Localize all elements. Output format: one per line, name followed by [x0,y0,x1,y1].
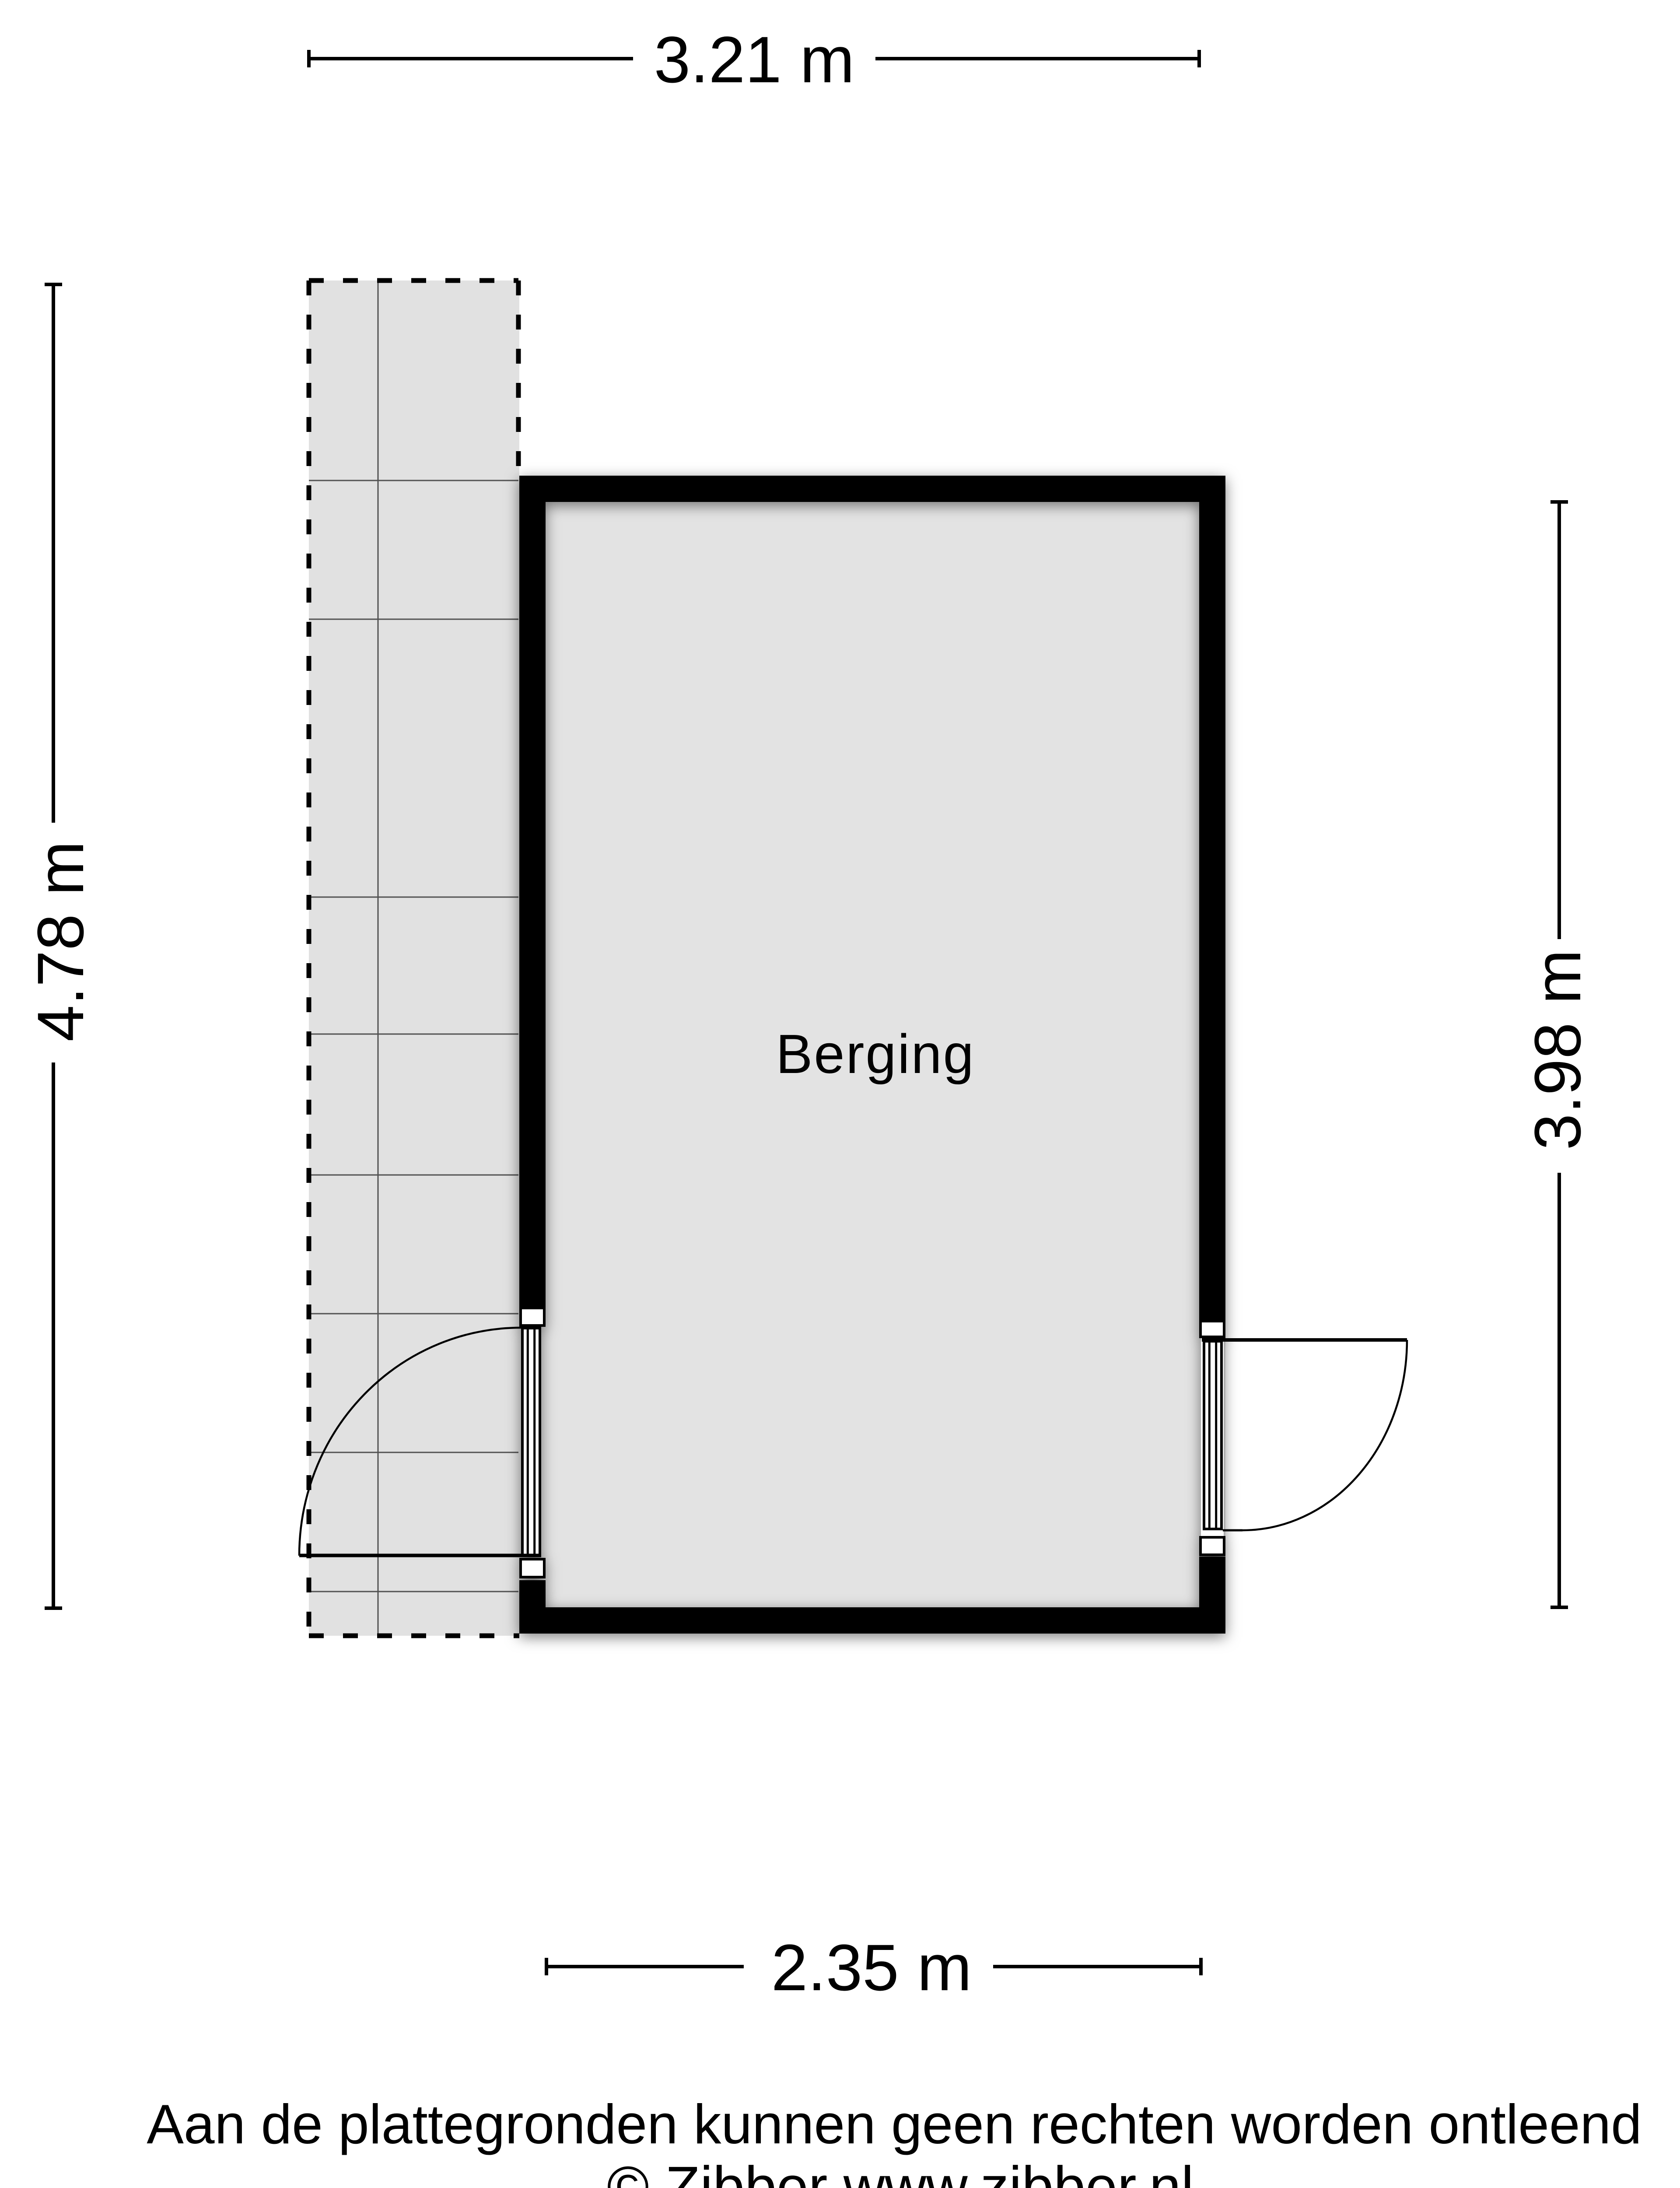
svg-text:4.78 m: 4.78 m [24,841,97,1042]
svg-text:2.35 m: 2.35 m [771,1931,972,2004]
svg-text:3.98 m: 3.98 m [1521,950,1594,1150]
svg-text:© Zibber www.zibber.nl: © Zibber www.zibber.nl [607,2154,1194,2188]
svg-text:Aan de plattegronden kunnen ge: Aan de plattegronden kunnen geen rechten… [147,2093,1642,2155]
svg-text:3.21 m: 3.21 m [654,23,855,96]
svg-text:Berging: Berging [776,1023,975,1085]
